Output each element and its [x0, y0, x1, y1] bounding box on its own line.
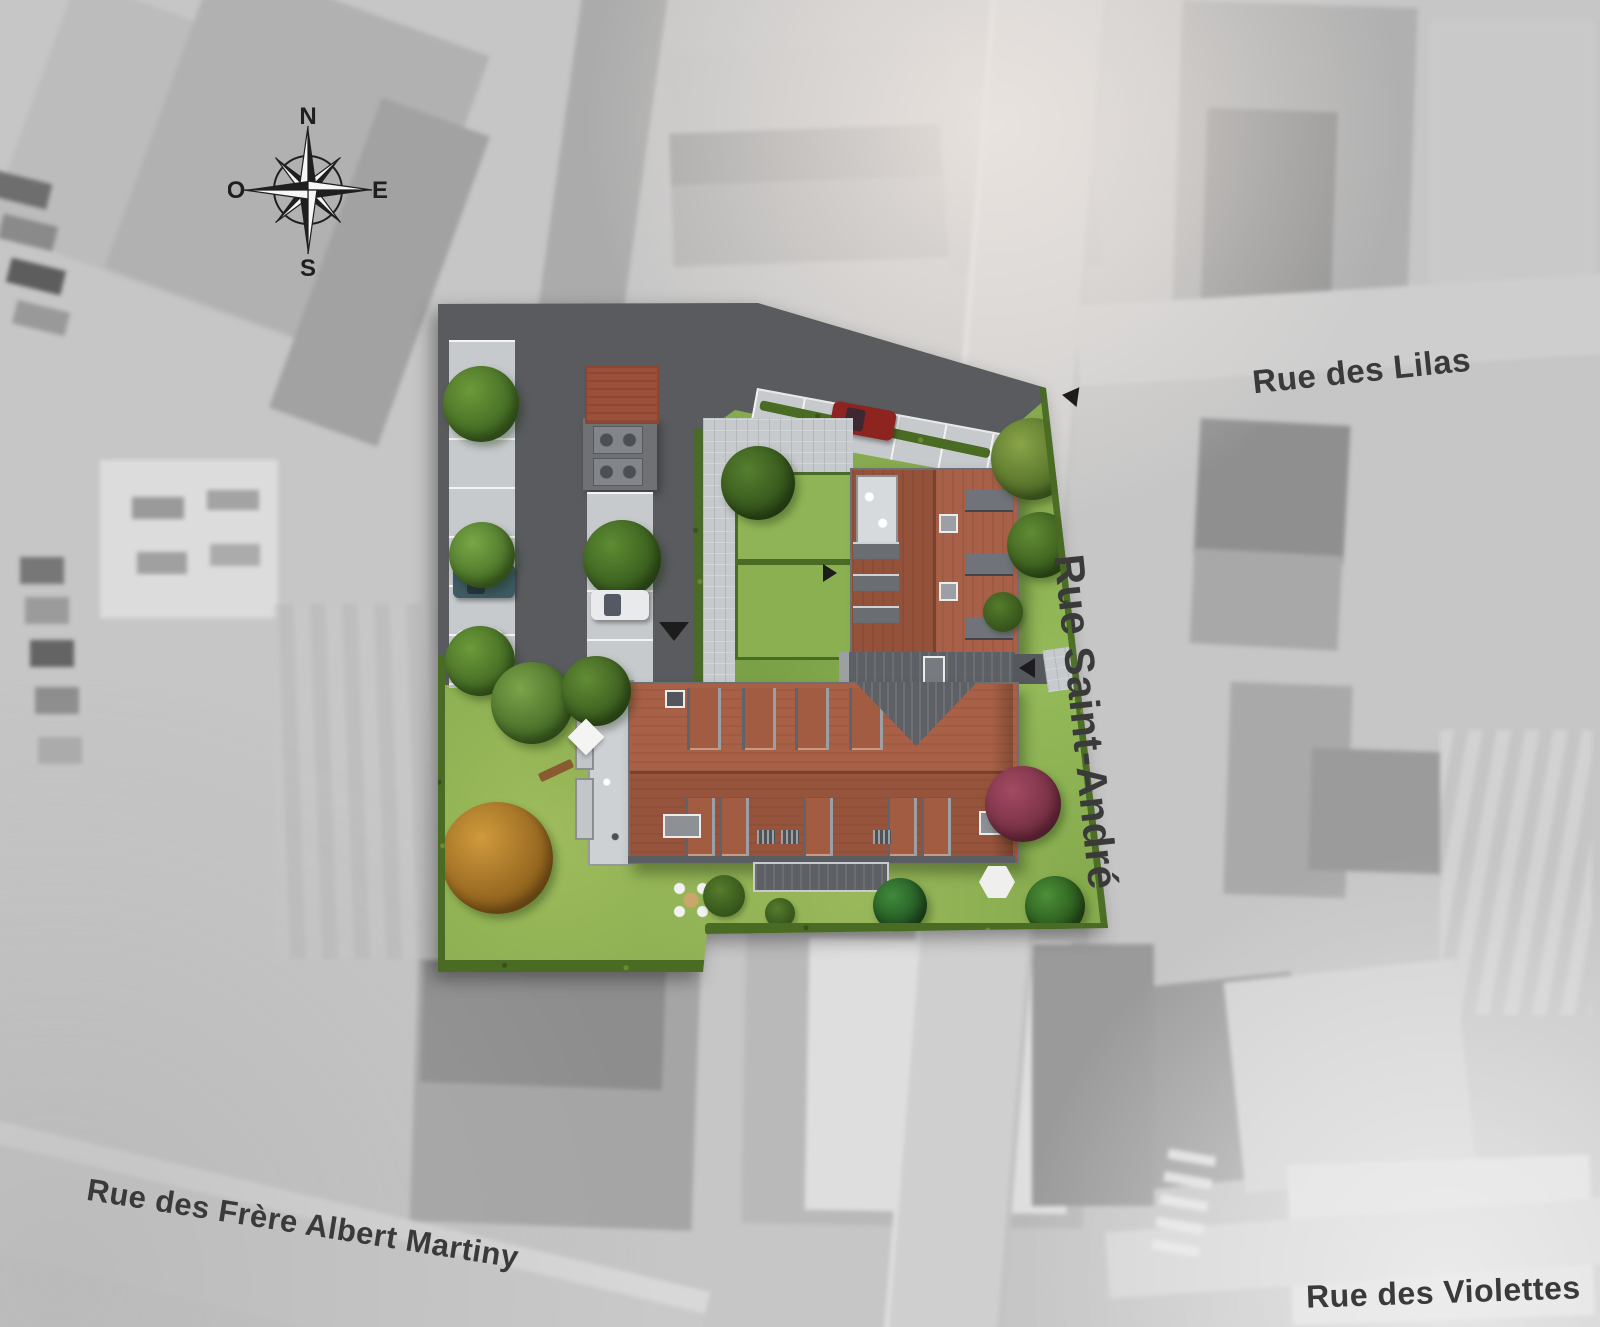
roof-terrace: [856, 475, 898, 545]
compass-east-label: E: [372, 177, 388, 204]
roof-dormer: [853, 574, 899, 591]
compass-west-label: O: [228, 177, 245, 204]
roof-dormer: [853, 542, 899, 559]
roof-dormer: [687, 688, 721, 750]
tree-icon: [443, 366, 519, 442]
entrance-arrow-icon: [659, 622, 689, 641]
boundary-hedge-south: [437, 960, 707, 973]
tree-icon: [583, 520, 661, 598]
tree-icon: [491, 662, 573, 744]
pedestrian-path: [703, 528, 735, 686]
roof-dormer: [965, 554, 1013, 576]
entrance-arrow-icon: [1061, 385, 1080, 407]
private-garden: [735, 562, 857, 660]
roof-dormer: [803, 798, 833, 856]
purple-tree-icon: [985, 766, 1061, 842]
roof-skylight: [939, 514, 958, 533]
roof-dormer: [965, 490, 1013, 512]
roof-dormer: [719, 798, 749, 856]
boundary-hedge-south: [705, 923, 1109, 935]
compass-rose-icon: N S E O: [228, 100, 388, 290]
roof-access-box: [663, 814, 701, 838]
tree-icon: [991, 418, 1073, 500]
bush-icon: [983, 592, 1023, 632]
bush-icon: [943, 934, 967, 958]
roof-skylight: [923, 656, 945, 684]
roof-vent: [873, 830, 891, 844]
balcony: [575, 778, 594, 840]
roof-dormer: [795, 688, 829, 750]
boundary-hedge-west: [437, 655, 445, 973]
roof-vent: [781, 830, 799, 844]
roof-skylight: [939, 582, 958, 601]
bush-icon: [703, 875, 745, 917]
bush-icon: [893, 938, 913, 958]
hedge-strip: [693, 428, 703, 684]
entrance-arrow-icon: [1019, 658, 1035, 678]
entrance-canopy: [753, 862, 889, 892]
development-site-plan: [435, 300, 1110, 975]
roof-dormer: [742, 688, 776, 750]
link-roof-edge: [839, 652, 849, 686]
tree-icon: [721, 446, 795, 520]
site-plan-aerial-view: N S E O Rue des Lilas Rue Saint-André Ru…: [0, 0, 1600, 1327]
bush-icon: [787, 936, 807, 956]
roof-dormer: [921, 798, 951, 856]
roof-dormer: [853, 606, 899, 623]
bin-panel: [593, 426, 643, 454]
compass-south-label: S: [300, 255, 316, 282]
bush-icon: [837, 934, 863, 960]
bin-store-roof: [585, 366, 659, 424]
roof-vent: [757, 830, 775, 844]
bush-icon: [735, 932, 759, 956]
tree-icon: [449, 522, 515, 588]
bin-panel: [593, 458, 643, 486]
autumn-tree-icon: [441, 802, 553, 914]
entrance-arrow-icon: [823, 564, 837, 582]
roof-dormer: [887, 798, 917, 856]
compass-north-label: N: [299, 103, 316, 130]
tree-icon: [561, 656, 631, 726]
roof-skylight: [665, 690, 685, 708]
white-car: [591, 590, 649, 620]
